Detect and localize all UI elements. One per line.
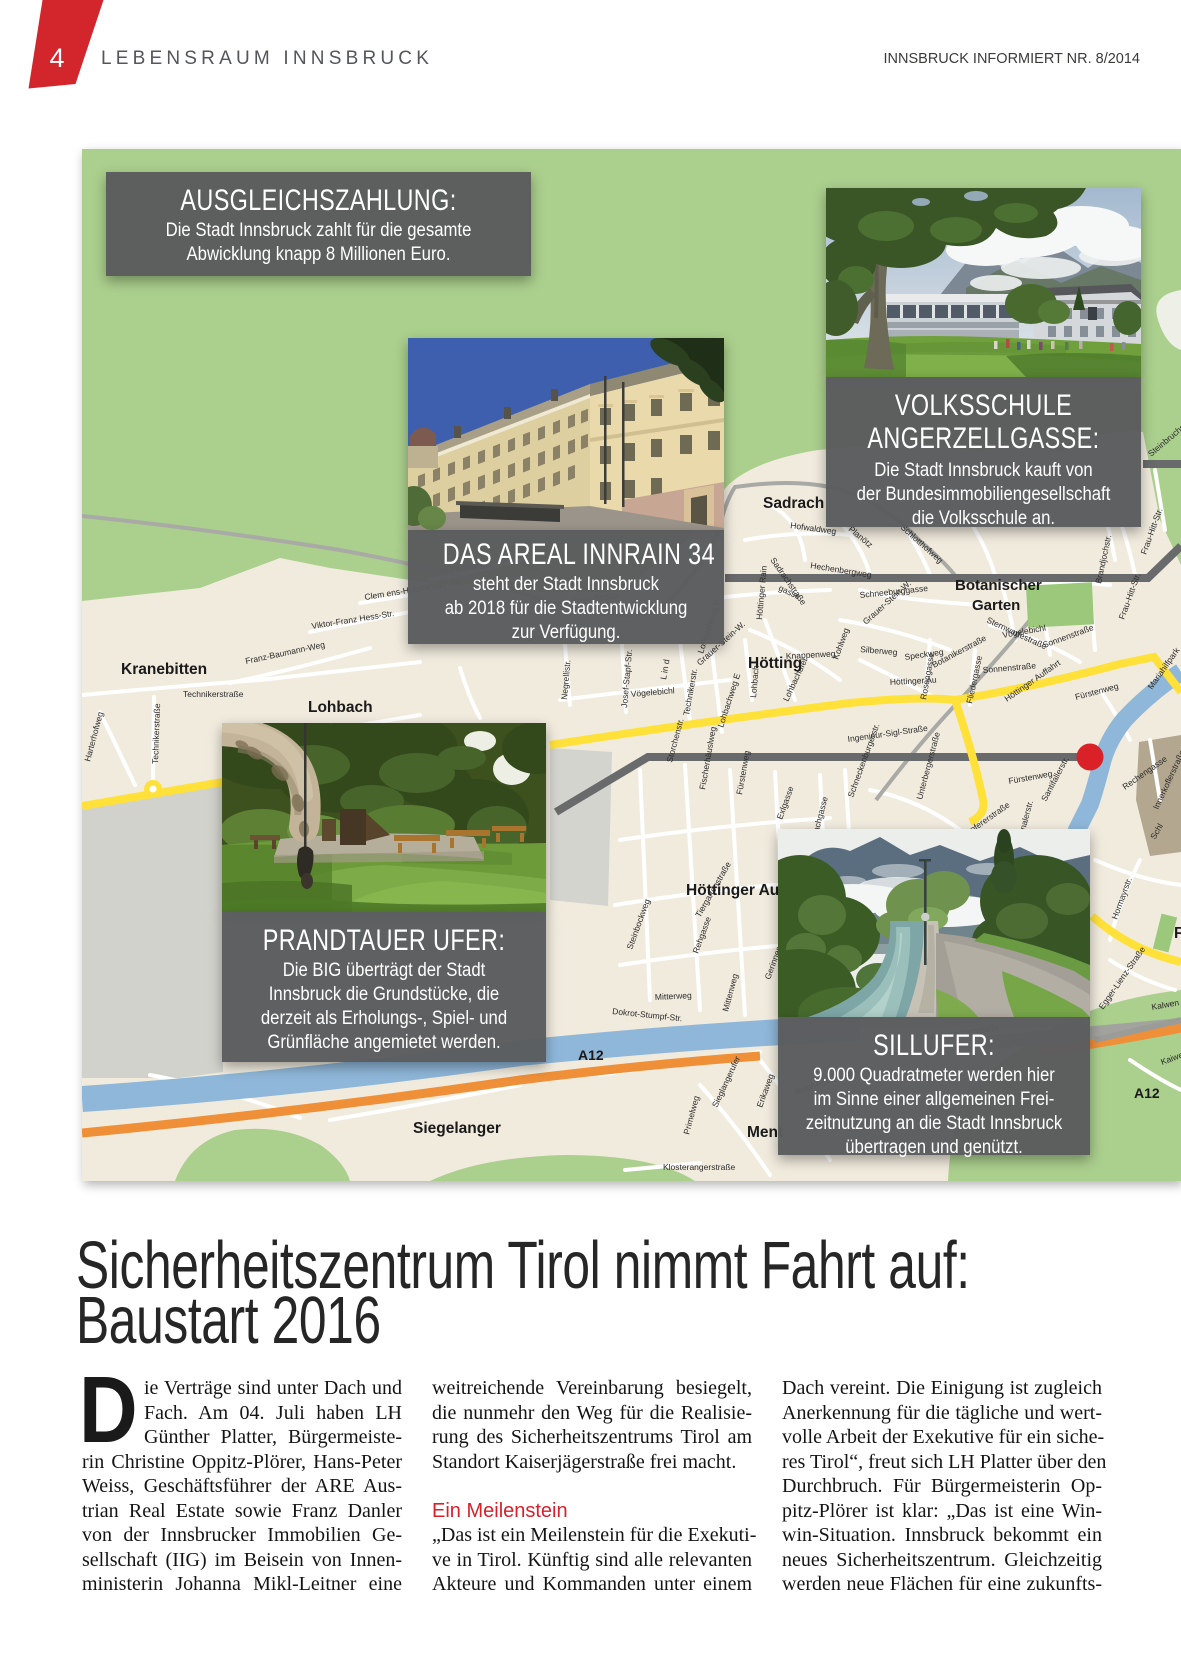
svg-text:Mitterweg: Mitterweg: [655, 990, 693, 1002]
svg-text:Technikerstraße: Technikerstraße: [183, 689, 244, 699]
svg-text:F: F: [1174, 925, 1181, 942]
svg-text:A12: A12: [1134, 1085, 1160, 1101]
svg-text:A12: A12: [578, 1047, 604, 1063]
svg-text:Höttinger Au: Höttinger Au: [686, 882, 779, 899]
svg-text:Kranebitten: Kranebitten: [121, 661, 207, 678]
svg-text:Klosterangerstraße: Klosterangerstraße: [663, 1162, 736, 1172]
svg-text:Sadrach: Sadrach: [763, 495, 824, 512]
svg-text:4: 4: [49, 43, 64, 73]
svg-text:Garten: Garten: [972, 597, 1020, 614]
svg-text:Siegelanger: Siegelanger: [413, 1120, 501, 1137]
svg-text:Botanischer: Botanischer: [955, 577, 1042, 594]
svg-text:Lohbach: Lohbach: [308, 699, 373, 716]
svg-text:Technikerstraße: Technikerstraße: [150, 703, 162, 764]
